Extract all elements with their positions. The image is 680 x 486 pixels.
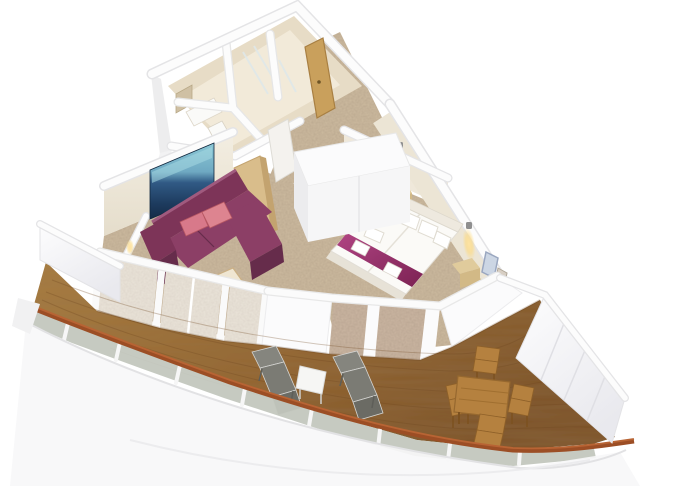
chair-seat [473, 359, 498, 374]
dining-chair-bottom [474, 414, 506, 447]
dining-table-top [454, 376, 510, 418]
wall-lamp-2 [466, 222, 472, 229]
suite-floorplan-render [0, 0, 680, 486]
entry-door-handle [317, 80, 321, 84]
floor-lamp-glow [126, 239, 134, 255]
floorplan-svg [0, 0, 680, 486]
